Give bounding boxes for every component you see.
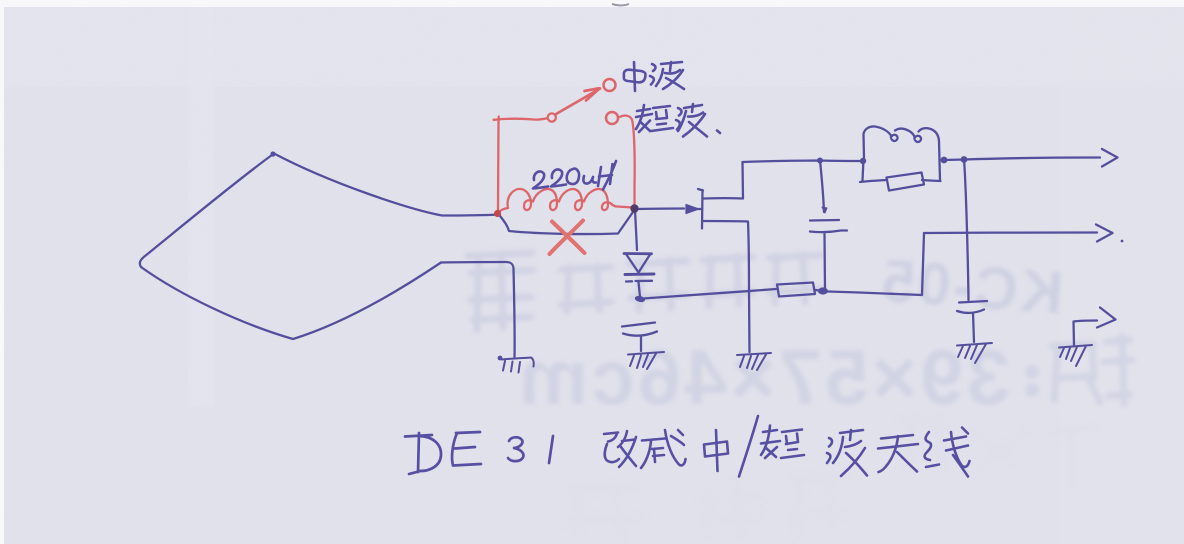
svg-text:KC-05: KC-05 [878,247,1066,327]
svg-text:39×57×46cm: 39×57×46cm [516,333,1010,421]
